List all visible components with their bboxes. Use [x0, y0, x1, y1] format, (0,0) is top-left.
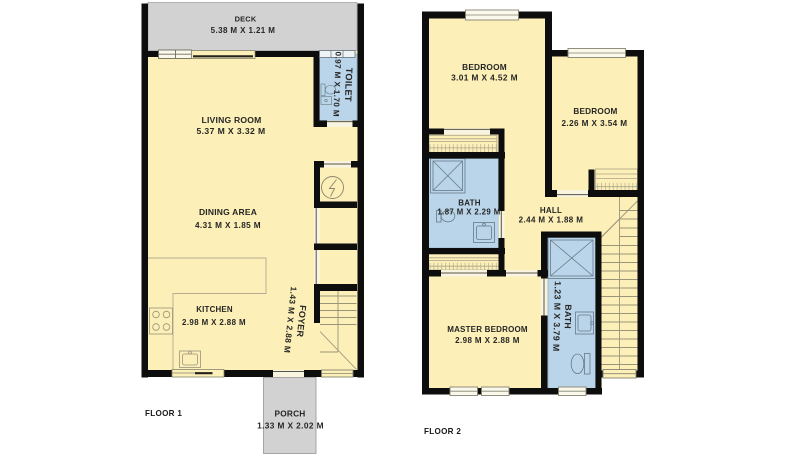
- svg-text:DINING AREA: DINING AREA: [199, 207, 257, 217]
- svg-text:FLOOR 2: FLOOR 2: [424, 427, 461, 436]
- svg-text:MASTER BEDROOM: MASTER BEDROOM: [447, 325, 528, 334]
- svg-text:FLOOR 1: FLOOR 1: [145, 409, 182, 418]
- svg-text:2.26 M X 3.54 M: 2.26 M X 3.54 M: [561, 119, 627, 128]
- svg-text:KITCHEN: KITCHEN: [196, 305, 233, 314]
- svg-text:5.37 M X 3.32 M: 5.37 M X 3.32 M: [196, 126, 265, 136]
- svg-text:2.98 M X 2.88 M: 2.98 M X 2.88 M: [182, 318, 246, 327]
- svg-text:3.01 M X 4.52 M: 3.01 M X 4.52 M: [451, 73, 518, 83]
- svg-text:BEDROOM: BEDROOM: [462, 62, 507, 72]
- svg-text:BATH: BATH: [458, 199, 480, 208]
- svg-text:2.44 M X 1.88 M: 2.44 M X 1.88 M: [519, 216, 584, 225]
- svg-text:DECK: DECK: [235, 15, 257, 24]
- svg-text:1.33 M X 2.02 M: 1.33 M X 2.02 M: [257, 420, 324, 430]
- svg-text:PORCH: PORCH: [275, 409, 306, 419]
- svg-text:HALL: HALL: [540, 206, 562, 215]
- svg-text:1.23 M X 3.79 M: 1.23 M X 3.79 M: [551, 281, 563, 352]
- svg-text:1.87 M X 2.29 M: 1.87 M X 2.29 M: [437, 208, 500, 217]
- svg-text:4.31 M X 1.85 M: 4.31 M X 1.85 M: [195, 221, 261, 230]
- svg-text:TOILET: TOILET: [343, 67, 354, 102]
- svg-text:BATH: BATH: [563, 304, 574, 329]
- svg-text:BEDROOM: BEDROOM: [573, 107, 617, 116]
- svg-text:5.38 M X 1.21 M: 5.38 M X 1.21 M: [211, 26, 276, 35]
- svg-text:LIVING ROOM: LIVING ROOM: [202, 115, 262, 125]
- svg-text:2.98 M X 2.88 M: 2.98 M X 2.88 M: [455, 336, 520, 345]
